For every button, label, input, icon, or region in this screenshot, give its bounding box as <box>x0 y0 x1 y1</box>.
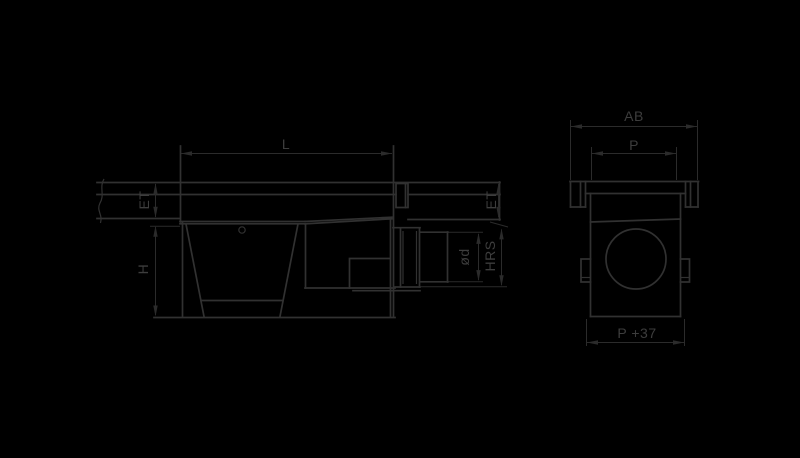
outlet-opening <box>350 259 391 289</box>
dim-label-et-right: ET <box>484 191 498 210</box>
outlet-pipe <box>393 228 448 287</box>
channel-body <box>581 194 690 317</box>
locking-screw <box>239 227 245 233</box>
side-view <box>97 146 508 318</box>
dim-label-height: H <box>136 264 150 275</box>
dim-label-length: L <box>282 137 290 151</box>
sump-box <box>154 217 420 317</box>
dim-H <box>150 226 180 317</box>
dim-ET-left <box>153 183 157 217</box>
channel-run <box>97 179 500 223</box>
side-tab-left <box>581 259 591 282</box>
technical-drawing <box>0 0 800 458</box>
dim-label-overall-width: AB <box>624 109 644 123</box>
end-cap <box>396 184 408 208</box>
dim-label-pipe-diameter: ød <box>457 248 471 265</box>
dim-label-base-width: P +37 <box>617 326 656 340</box>
dim-label-hrs: HRS <box>483 240 497 271</box>
dim-label-width: P <box>629 138 639 152</box>
end-view <box>570 120 699 346</box>
side-tab-right <box>681 259 690 282</box>
drawing-canvas: L ET H ET ød HRS AB P P +37 <box>0 0 800 458</box>
top-frame <box>570 182 699 208</box>
silt-bucket <box>186 224 298 317</box>
break-line <box>99 179 104 223</box>
pipe-opening <box>606 229 666 289</box>
dim-label-et-left: ET <box>137 191 151 210</box>
